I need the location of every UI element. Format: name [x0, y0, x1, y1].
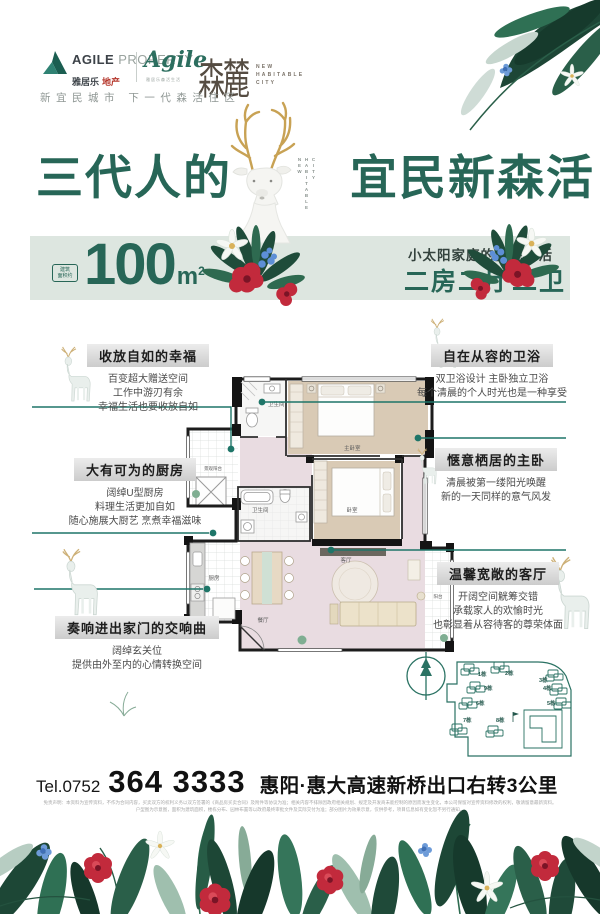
brand-name-cn: 雅居乐	[72, 77, 99, 87]
hero-title-left: 三代人的	[36, 152, 232, 204]
feature-line: 承载家人的欢愉时光	[408, 605, 588, 619]
area-group: 建筑 面积约 100 m2	[52, 240, 205, 290]
vertical-word: NEW	[296, 157, 302, 211]
room-label-dining: 餐厅	[257, 616, 269, 624]
feature-line: 每个清晨的个人时光也是一种享受	[402, 387, 582, 401]
badge-line: 面积约	[54, 273, 76, 279]
project-sub-line: NEW	[256, 63, 304, 71]
feature-block-living: 温馨宽敞的客厅 开阔空间觥筹交错 承载家人的欢愉时光 也彰显着从容待客的尊荣体面	[408, 562, 588, 633]
feature-line: 双卫浴设计 主卧独立卫浴	[402, 373, 582, 387]
project-sub-line: CITY	[256, 79, 304, 87]
tel-label: Tel.0752	[36, 777, 100, 797]
feature-title: 温馨宽敞的客厅	[437, 562, 559, 585]
feature-line: 清晨被第一缕阳光唤醒	[406, 477, 586, 491]
site-plan: 1栋 2栋 3栋 9栋 4栋 6栋 5栋 7栋 8栋	[447, 662, 571, 756]
brand-tagline: 新宜民城市 下一代森活住区	[40, 90, 240, 105]
building-label: 5栋	[547, 699, 556, 707]
footer-contact: Tel.0752 364 3333 惠阳·惠大高速新桥出口右转3公里	[36, 764, 558, 800]
hero-layout-line: 二房二厅二卫	[404, 262, 566, 298]
hero-vertical-caption: NEW HABITABLE CITY	[296, 157, 316, 211]
fine-print: 免责声明：本资料为宣传资料，不作为合同内容，买卖双方的权利义务以双方签署的《商品…	[35, 800, 565, 813]
area-band: 建筑 面积约 100 m2 小太阳家庭的宜民森活 二房二厅二卫	[30, 236, 570, 300]
brand-name-en: AGILE	[72, 52, 114, 67]
building-label: 1栋	[478, 670, 487, 678]
vertical-word: HABITABLE	[303, 157, 309, 211]
header-divider	[136, 52, 137, 82]
feature-line: 幸福生活也要收放自如	[48, 401, 248, 415]
sprig-icon	[110, 692, 136, 716]
building-label: 8栋	[496, 716, 505, 724]
hero-subtitle: 小太阳家庭的宜民森活	[408, 244, 553, 264]
feature-block-kitchen: 大有可为的厨房 阔绰U型厨房 料理生活更加自如 随心施展大厨艺 烹煮幸福滋味	[35, 458, 235, 529]
hero-deer-illustration	[232, 103, 294, 243]
feature-line: 阔绰玄关位	[33, 645, 241, 659]
building-label: 3栋	[539, 676, 548, 684]
feature-title: 奏响进出家门的交响曲	[55, 616, 219, 639]
feature-line: 开阔空间觥筹交错	[408, 591, 588, 605]
building-label: 2栋	[505, 669, 514, 677]
brand-name-cn2: 地产	[102, 77, 120, 87]
corner-foliage	[456, 0, 600, 130]
poster: AGILEPROPERTY 雅居乐地产 Agile 雅居乐森活生活 森麓 NEW…	[0, 0, 600, 914]
area-unit: m2	[177, 260, 205, 288]
room-label-master: 主卧室	[344, 444, 361, 452]
feature-title: 收放自如的幸福	[87, 344, 209, 367]
room-label-bedroom2: 卧室	[346, 506, 358, 514]
feature-title: 大有可为的厨房	[74, 458, 196, 481]
feature-block-bath: 自在从容的卫浴 双卫浴设计 主卧独立卫浴 每个清晨的个人时光也是一种享受	[402, 344, 582, 401]
project-logo-subtext: NEW HABITABLE CITY	[256, 63, 304, 87]
fine-print-line: 免责声明：本资料为宣传资料，不作为合同内容，买卖双方的权利义务以双方签署的《商品…	[35, 800, 565, 807]
address-text: 惠阳·惠大高速新桥出口右转3公里	[260, 769, 558, 798]
building-label: 7栋	[463, 716, 472, 724]
feature-line: 随心施展大厨艺 烹煮幸福滋味	[35, 515, 235, 529]
building-label: 6栋	[476, 699, 485, 707]
tel-number: 364 3333	[108, 764, 245, 800]
feature-line: 工作中游刃有余	[48, 387, 248, 401]
feature-line: 阔绰U型厨房	[35, 487, 235, 501]
feature-title: 惬意栖居的主卧	[435, 448, 557, 471]
feature-block-storage: 收放自如的幸福 百变超大赠送空间 工作中游刃有余 幸福生活也要收放自如	[48, 344, 248, 415]
project-sub-line: HABITABLE	[256, 71, 304, 79]
room-label-bath2: 卫生间	[252, 506, 269, 514]
feature-block-entry: 奏响进出家门的交响曲 阔绰玄关位 提供由外至内的心情转换空间	[33, 616, 241, 673]
building-label: 9栋	[484, 684, 493, 692]
agile-logo-icon	[42, 50, 68, 78]
area-badge: 建筑 面积约	[52, 264, 78, 282]
hero-title-right: 宜民新森活	[350, 152, 595, 204]
vertical-word: CITY	[310, 157, 316, 211]
feature-block-master: 惬意栖居的主卧 清晨被第一缕阳光唤醒 新的一天同样的意气风发	[406, 448, 586, 505]
deer-icon	[63, 549, 98, 615]
fine-print-line: 户型图为示意图，面积为建筑面积，楼栋分布、园林布置等以政府最终审批文件及实际交付…	[35, 807, 565, 814]
area-value: 100	[84, 240, 175, 290]
feature-line: 也彰显着从容待客的尊荣体面	[408, 619, 588, 633]
agile-script-subtext: 雅居乐森活生活	[146, 77, 181, 83]
feature-line: 料理生活更加自如	[35, 501, 235, 515]
project-logo: 森麓	[198, 46, 248, 85]
feature-title: 自在从容的卫浴	[431, 344, 553, 367]
feature-line: 提供由外至内的心情转换空间	[33, 659, 241, 673]
room-label-living: 客厅	[340, 556, 352, 564]
feature-line: 新的一天同样的意气风发	[406, 491, 586, 505]
flag-icon	[513, 712, 519, 722]
floral-border	[0, 807, 600, 914]
building-label: 4栋	[543, 684, 552, 692]
room-label-kitchen: 厨房	[208, 574, 220, 582]
antlers-icon	[232, 103, 294, 172]
room-label-bath1: 卫生间	[268, 400, 285, 408]
feature-line: 百变超大赠送空间	[48, 373, 248, 387]
